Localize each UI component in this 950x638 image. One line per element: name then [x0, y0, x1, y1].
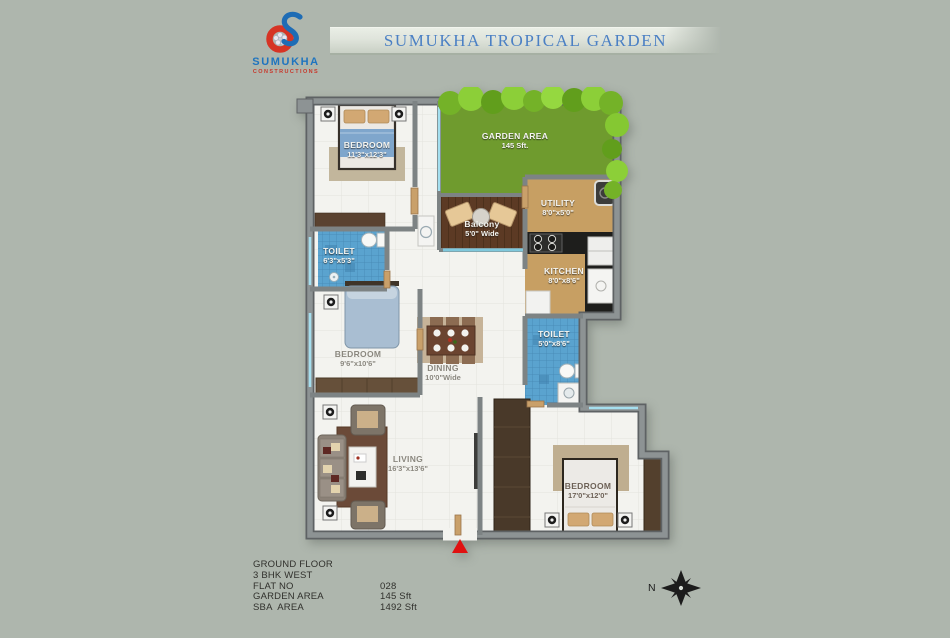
- brand-name: SUMUKHA: [239, 56, 333, 68]
- info-row-type: 3 BHK WEST: [253, 570, 417, 581]
- info-row-flat-no: FLAT NO 028: [253, 581, 417, 592]
- entrance-arrow: [452, 539, 468, 553]
- project-title-bar: SUMUKHA TROPICAL GARDEN: [330, 27, 721, 55]
- info-row-floor: GROUND FLOOR: [253, 559, 417, 570]
- floor-plan: BEDROOM 11'3"x12'3" GARDEN AREA 145 Sft.…: [287, 87, 680, 555]
- page-title: SUMUKHA TROPICAL GARDEN: [384, 31, 667, 51]
- floor-plan-graphic: [287, 87, 680, 555]
- info-row-sba-area: SBA AREA 1492 Sft: [253, 602, 417, 613]
- info-row-garden-area: GARDEN AREA 145 Sft: [253, 591, 417, 602]
- compass: N: [648, 566, 703, 610]
- page-background: SUMUKHA CONSTRUCTIONS SUMUKHA TROPICAL G…: [0, 0, 950, 638]
- brand-tagline: CONSTRUCTIONS: [239, 69, 333, 75]
- toilet-right-fixtures: [558, 364, 582, 403]
- dining-set: [417, 317, 483, 364]
- foyer-unit: [418, 216, 434, 246]
- info-block: GROUND FLOOR 3 BHK WEST FLAT NO 028 GARD…: [253, 559, 417, 613]
- compass-north-label: N: [648, 582, 656, 594]
- compass-icon: [659, 566, 703, 610]
- logo: SUMUKHA CONSTRUCTIONS: [239, 10, 333, 75]
- logo-icon: [263, 10, 309, 56]
